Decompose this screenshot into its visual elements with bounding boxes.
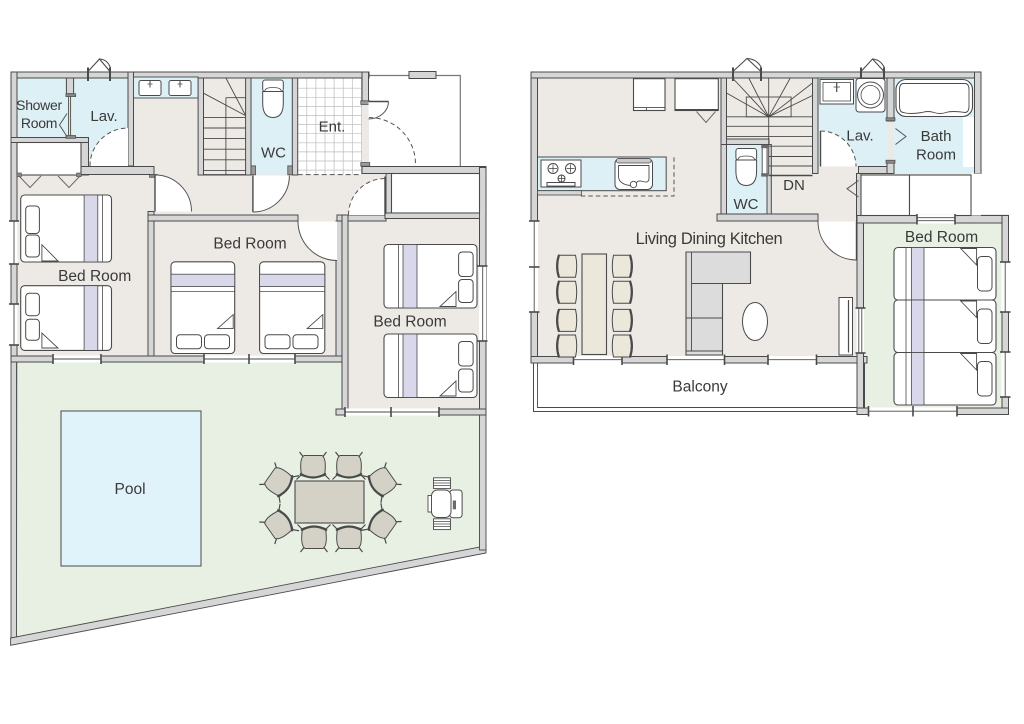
svg-text:Shower: Shower — [16, 97, 62, 113]
svg-text:Room: Room — [916, 147, 956, 164]
svg-text:Bath: Bath — [921, 128, 952, 145]
svg-text:Bed Room: Bed Room — [373, 314, 446, 331]
svg-text:WC: WC — [261, 145, 286, 162]
svg-text:Pool: Pool — [114, 481, 145, 498]
svg-text:Bed Room: Bed Room — [213, 236, 286, 253]
svg-text:DN: DN — [783, 177, 805, 194]
svg-text:Balcony: Balcony — [672, 379, 727, 396]
svg-text:WC: WC — [734, 196, 759, 213]
svg-text:Bed Room: Bed Room — [58, 268, 131, 285]
svg-text:Lav.: Lav. — [846, 128, 873, 145]
svg-text:Lav.: Lav. — [90, 108, 117, 125]
svg-text:Ent.: Ent. — [319, 119, 346, 136]
svg-text:Living Dining Kitchen: Living Dining Kitchen — [636, 230, 783, 248]
svg-text:Room: Room — [21, 115, 57, 131]
svg-text:Bed Room: Bed Room — [905, 229, 978, 246]
